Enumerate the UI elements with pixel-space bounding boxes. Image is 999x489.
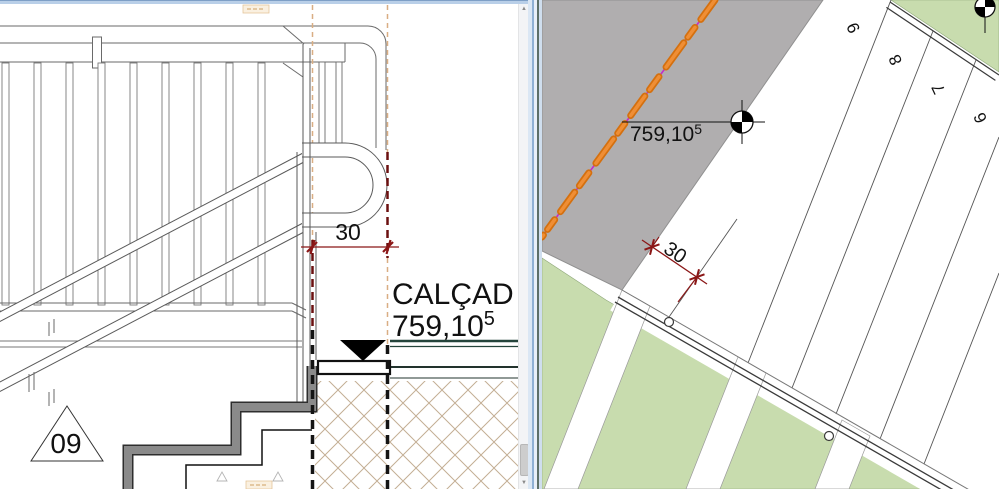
level-text-right: 759,105 — [630, 121, 702, 146]
sidewalk-hatch — [315, 381, 518, 489]
sloped-handrails — [0, 153, 303, 406]
background-guardrail — [0, 26, 386, 318]
tread-number-9: 9 — [843, 19, 864, 36]
window-divider[interactable] — [528, 0, 542, 489]
tread-number-7: 7 — [928, 80, 949, 97]
section-view-canvas[interactable]: 30 CALÇAD 759,105 09 — [0, 4, 518, 489]
floor-lines — [0, 341, 302, 347]
street-label: CALÇAD — [392, 278, 514, 311]
level-superscript-left: 5 — [484, 308, 495, 330]
dimension-30-right: 30 — [642, 237, 707, 302]
step-marker-text: 09 — [50, 428, 81, 459]
handrail-loop — [302, 143, 387, 227]
step-position-marker: 09 — [31, 406, 103, 461]
tread-number-6: 6 — [970, 109, 991, 126]
level-text-left: 759,105 — [392, 308, 495, 343]
tread-number-8: 8 — [885, 51, 906, 68]
level-marker-triangle — [340, 340, 386, 361]
level-superscript-right: 5 — [694, 121, 702, 137]
railing-post-circle — [825, 432, 834, 441]
level-value-left: 759,10 — [392, 310, 484, 343]
dimension-30-right-text: 30 — [660, 238, 691, 269]
railing-post-circle — [665, 318, 674, 327]
vertical-scrollbar[interactable]: ▲ ▼ — [518, 4, 528, 489]
plan-view-canvas[interactable]: 759,105 30 9 8 7 6 — [542, 0, 999, 489]
dimension-30-left-text: 30 — [335, 219, 361, 245]
cad-application-window: 30 CALÇAD 759,105 09 ▲ ▼ — [0, 0, 999, 489]
level-value-right: 759,10 — [630, 123, 694, 146]
